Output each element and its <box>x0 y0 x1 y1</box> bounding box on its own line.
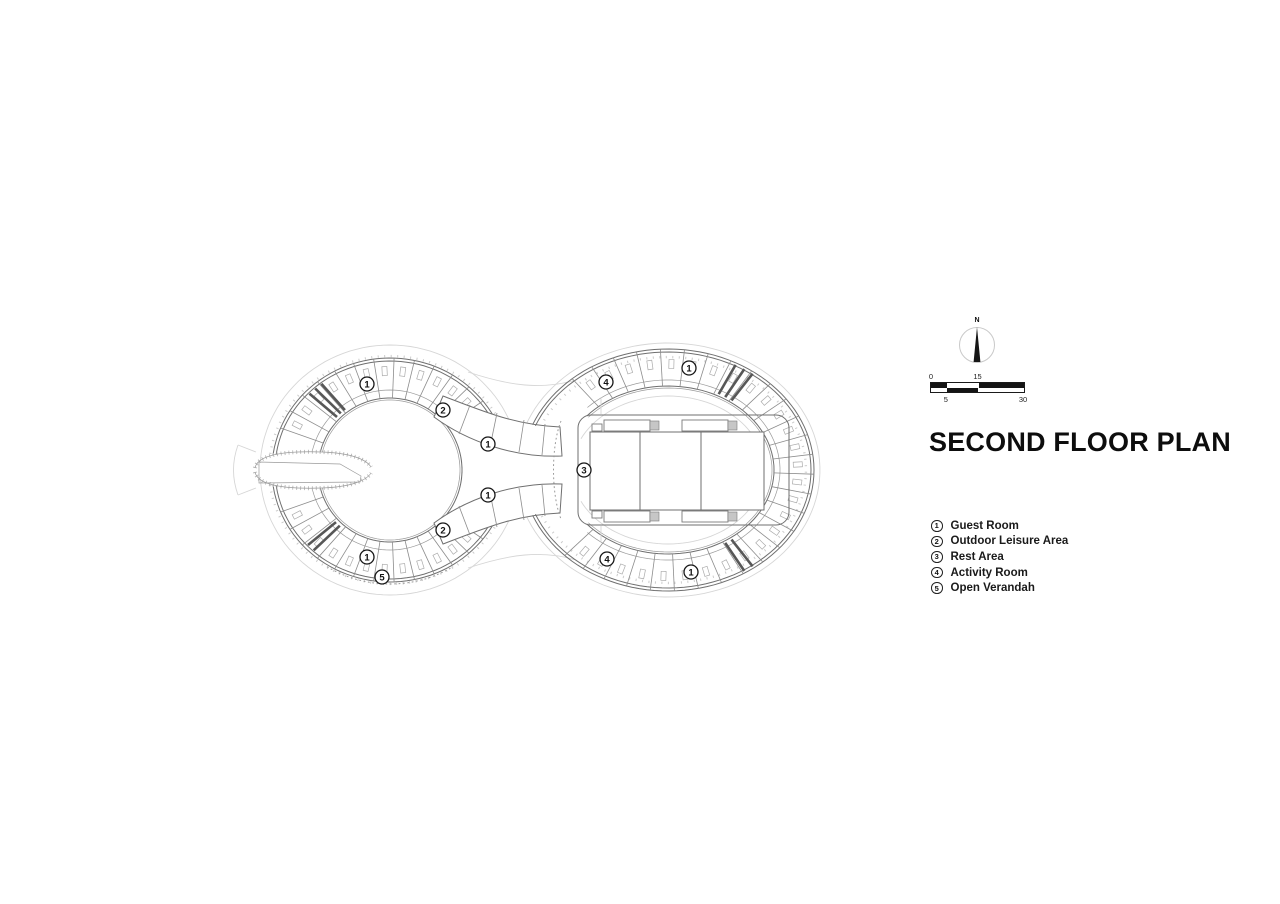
plan-partition <box>393 542 395 582</box>
page-title: SECOND FLOOR PLAN <box>929 429 1231 456</box>
plan-partition <box>572 379 598 407</box>
plan-roof-box <box>682 511 728 522</box>
scale-label-30: 30 <box>1019 395 1027 404</box>
plan-furniture <box>625 364 632 374</box>
plan-roof-box <box>604 511 650 522</box>
legend-item-number: 5 <box>931 582 943 594</box>
drawing-sheet: 121413121541 N 0 15 5 30 SECOND FLOOR PL… <box>0 0 1280 904</box>
plan-core-box <box>728 512 737 521</box>
plan-furniture <box>345 374 353 384</box>
plan-partition <box>707 548 722 582</box>
legend-item-label: Rest Area <box>951 551 1004 563</box>
plan-furniture <box>617 564 625 574</box>
plan-furniture <box>790 444 800 451</box>
scale-label-15: 15 <box>973 372 981 381</box>
plan-furniture <box>792 479 802 485</box>
plan-core-box <box>650 421 659 430</box>
plan-partition <box>767 500 804 513</box>
plan-furniture <box>669 359 674 368</box>
plan-partition <box>374 359 380 399</box>
plan-furniture <box>400 564 406 574</box>
scale-bar: 0 15 5 30 <box>930 372 1025 406</box>
plan-partition <box>565 529 593 555</box>
plan-furniture <box>302 525 312 534</box>
plan-furniture <box>756 539 766 549</box>
plan-roof-box <box>682 420 728 431</box>
legend: 1 Guest Room 2 Outdoor Leisure Area 3 Re… <box>931 518 1068 596</box>
legend-item-number: 2 <box>931 536 943 548</box>
legend-item-number: 3 <box>931 551 943 563</box>
north-needle-icon <box>974 327 981 362</box>
plan-marker-number: 1 <box>364 552 370 563</box>
plan-marker-number: 2 <box>440 405 445 416</box>
legend-item-label: Activity Room <box>951 567 1028 579</box>
plan-marker-number: 5 <box>379 572 385 583</box>
plan-furniture <box>761 396 771 406</box>
legend-item-label: Guest Room <box>951 520 1019 532</box>
scale-label-5: 5 <box>944 395 948 404</box>
legend-item: 4 Activity Room <box>931 565 1068 581</box>
plan-furniture <box>722 560 730 570</box>
scale-segment <box>931 383 947 388</box>
plan-furniture <box>382 366 387 375</box>
plan-rest-hall <box>590 432 764 510</box>
plan-furniture <box>329 382 338 392</box>
plan-core-box <box>728 421 737 430</box>
plan-marker-number: 1 <box>686 363 692 374</box>
legend-item-number: 4 <box>931 567 943 579</box>
north-label: N <box>974 317 979 324</box>
plan-furniture <box>793 462 802 467</box>
plan-partition <box>737 534 763 562</box>
plan-furniture <box>661 571 666 580</box>
plan-eave-arc <box>238 488 256 495</box>
plan-partition <box>660 349 662 386</box>
plan-furniture <box>302 406 312 415</box>
plan-partition <box>673 554 675 591</box>
plan-furniture <box>345 556 353 566</box>
plan-partition <box>754 399 786 421</box>
plan-partition <box>281 497 324 512</box>
plan-core-box <box>650 512 659 521</box>
plan-furniture <box>433 553 442 563</box>
plan-partition <box>281 428 324 443</box>
plan-stair-core <box>732 540 753 567</box>
plan-partition <box>772 487 811 494</box>
plan-furniture <box>702 566 709 576</box>
north-arrow: N <box>947 311 1007 375</box>
plan-furniture <box>639 569 646 579</box>
plan-furniture <box>400 367 406 377</box>
plan-marker-number: 3 <box>581 465 586 476</box>
plan-furniture <box>329 548 338 558</box>
scale-bar-graphic <box>930 382 1025 393</box>
plan-furniture <box>417 370 424 380</box>
plan-furniture <box>746 383 756 393</box>
plan-eave-arc <box>234 445 239 495</box>
legend-item: 2 Outdoor Leisure Area <box>931 534 1068 550</box>
plan-core-box <box>592 511 602 518</box>
legend-item-label: Open Verandah <box>951 582 1035 594</box>
plan-furniture <box>448 386 457 396</box>
legend-item-number: 1 <box>931 520 943 532</box>
plan-marker-number: 1 <box>485 439 491 450</box>
plan-marker-number: 1 <box>485 490 491 501</box>
plan-furniture <box>769 526 779 535</box>
plan-marker-number: 4 <box>603 377 609 388</box>
plan-marker-number: 1 <box>688 567 694 578</box>
plan-furniture <box>586 380 595 390</box>
plan-partition <box>773 454 813 459</box>
plan-geometry <box>234 343 820 597</box>
plan-marker-number: 1 <box>364 379 370 390</box>
plan-furniture <box>710 366 718 376</box>
plan-eave-arc <box>238 445 256 452</box>
plan-roof-box <box>604 420 650 431</box>
plan-furniture <box>448 544 457 554</box>
legend-item: 5 Open Verandah <box>931 580 1068 596</box>
legend-item: 1 Guest Room <box>931 518 1068 534</box>
plan-furniture <box>580 546 590 556</box>
plan-partition <box>393 358 395 398</box>
plan-furniture <box>292 421 302 430</box>
plan-marker-number: 4 <box>604 554 610 565</box>
scale-segment <box>947 388 979 393</box>
legend-item-label: Outdoor Leisure Area <box>951 535 1069 547</box>
plan-furniture <box>417 560 424 570</box>
plan-furniture <box>647 360 653 370</box>
plan-core-box <box>592 424 602 431</box>
plan-furniture <box>433 377 442 387</box>
legend-item: 3 Rest Area <box>931 549 1068 565</box>
scale-label-0: 0 <box>929 372 933 381</box>
plan-furniture <box>292 511 302 520</box>
plan-marker-number: 2 <box>440 525 445 536</box>
scale-segment <box>979 383 1025 388</box>
